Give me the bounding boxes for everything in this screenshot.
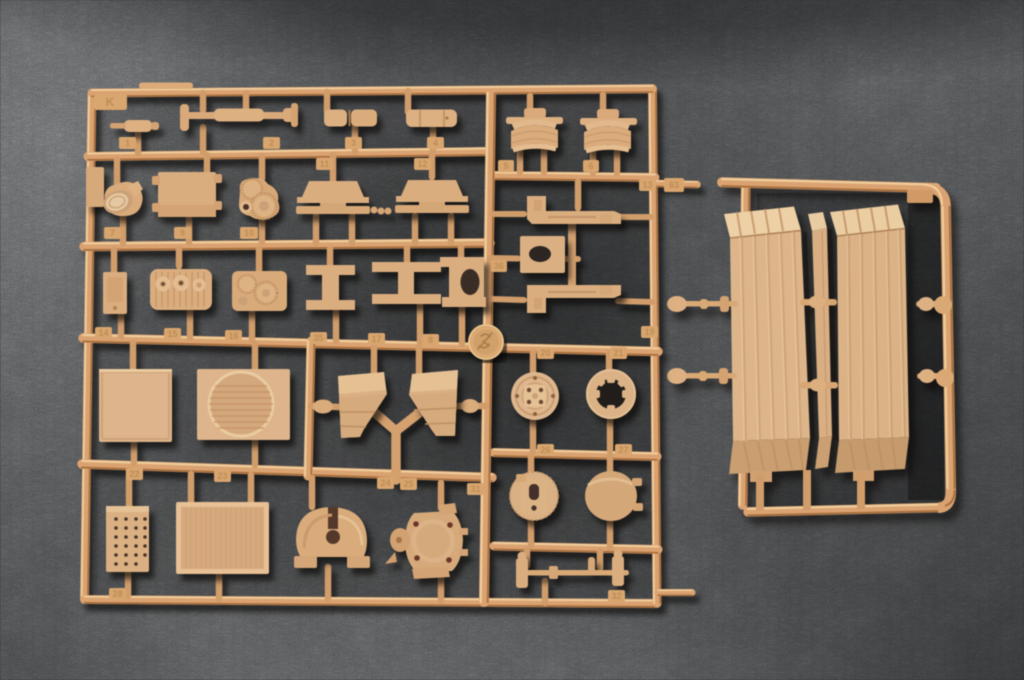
svg-text:3: 3 — [351, 138, 356, 148]
svg-text:4: 4 — [433, 138, 438, 148]
svg-text:25: 25 — [403, 479, 413, 489]
svg-text:63: 63 — [669, 180, 679, 190]
svg-text:26: 26 — [540, 445, 550, 455]
svg-text:31: 31 — [470, 484, 480, 494]
svg-text:36: 36 — [494, 261, 504, 271]
svg-text:16: 16 — [228, 331, 238, 341]
svg-text:7: 7 — [110, 228, 115, 238]
svg-text:20: 20 — [540, 348, 550, 358]
svg-text:14: 14 — [98, 328, 108, 338]
svg-text:17: 17 — [371, 334, 381, 344]
svg-text:28: 28 — [112, 589, 122, 599]
svg-text:K: K — [106, 95, 115, 109]
svg-text:1: 1 — [125, 138, 130, 148]
svg-text:11: 11 — [320, 159, 330, 169]
svg-text:9: 9 — [180, 228, 185, 238]
svg-text:22: 22 — [129, 469, 139, 479]
svg-text:19: 19 — [644, 327, 654, 337]
svg-text:8: 8 — [428, 335, 433, 345]
svg-text:21: 21 — [613, 348, 623, 358]
svg-text:6: 6 — [588, 161, 593, 171]
svg-text:5: 5 — [503, 161, 508, 171]
svg-text:12: 12 — [417, 159, 427, 169]
svg-text:15: 15 — [167, 329, 177, 339]
svg-text:24: 24 — [380, 478, 390, 488]
svg-text:27: 27 — [618, 445, 628, 455]
svg-text:35: 35 — [313, 333, 323, 343]
svg-text:13: 13 — [642, 180, 652, 190]
svg-text:2: 2 — [269, 138, 274, 148]
svg-text:32: 32 — [611, 591, 621, 601]
svg-text:10: 10 — [244, 228, 254, 238]
svg-text:23: 23 — [217, 471, 227, 481]
